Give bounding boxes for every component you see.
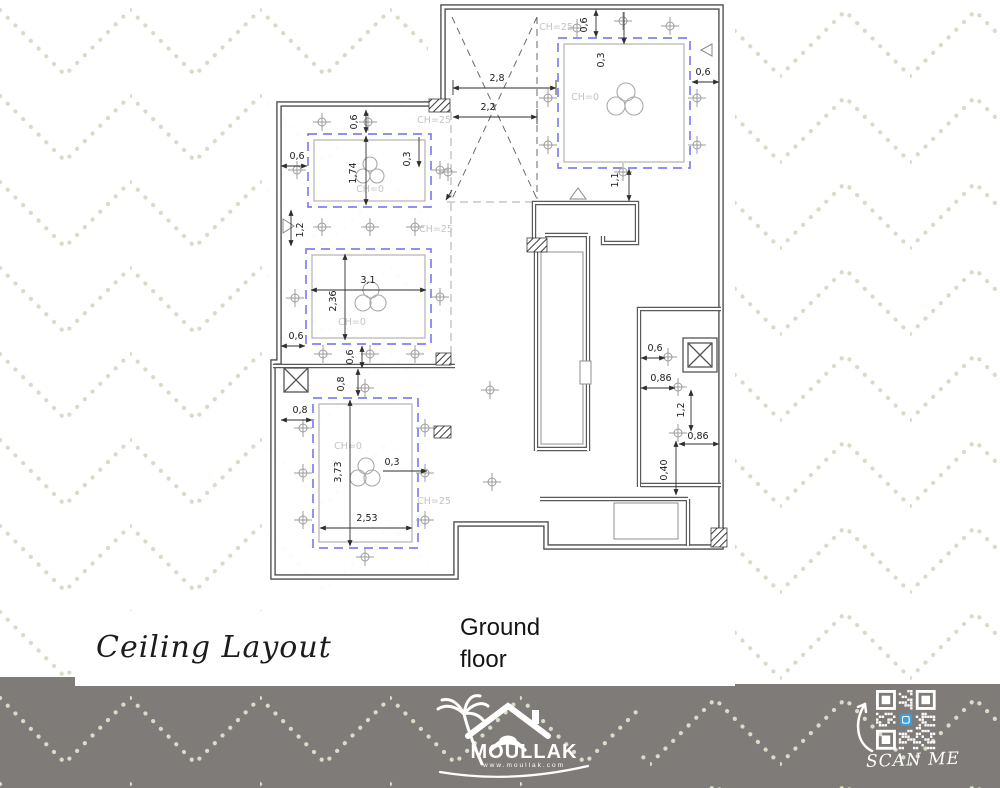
dimension: 0,86 xyxy=(641,373,675,388)
dimension-label: 0,6 xyxy=(579,17,590,32)
dimension-label: 3,1 xyxy=(360,275,375,286)
dimension-label: 0,8 xyxy=(336,376,347,391)
dimension: 0,8 xyxy=(336,369,358,396)
dimension-label: 0,8 xyxy=(292,405,307,416)
dimension-label: 3,73 xyxy=(333,461,344,482)
dimension-label: 2,8 xyxy=(489,73,504,84)
floor-plan: CH=25 CH=25 CH=25 CH=25 CH=0 CH=0 CH=0 C… xyxy=(0,0,1000,660)
qr-center-icon xyxy=(900,714,912,726)
dimension-label: 2,53 xyxy=(356,513,377,524)
brand-website: www.moullak.com xyxy=(482,762,565,769)
dimension: 2,53 xyxy=(320,513,412,528)
floor-label-line1: Ground xyxy=(460,612,540,644)
dimension-label: 1,1 xyxy=(610,172,621,187)
dimension-label: 1,2 xyxy=(295,222,306,237)
dimension: 0,3 xyxy=(596,12,624,68)
dimension: 3,1 xyxy=(311,275,426,290)
stair-flight xyxy=(541,252,583,444)
dimension: 0,6 xyxy=(281,331,305,346)
ceiling-height-label: CH=0 xyxy=(356,184,384,195)
moullak-logo: MOULLAK www.moullak.com xyxy=(420,688,600,786)
ceiling-height-label: CH=25 xyxy=(417,496,451,507)
dimension-label: 0,3 xyxy=(384,457,399,468)
dimension: 2,2 xyxy=(453,102,537,117)
dimension: 0,8 xyxy=(281,405,312,420)
dimension: 0,3 xyxy=(383,457,427,471)
dimension-label: 0,3 xyxy=(402,151,413,166)
chandelier-symbols xyxy=(350,83,643,486)
void-cross-dashed xyxy=(446,17,537,363)
dimension-label: 2,2 xyxy=(480,102,495,113)
arrow-to-qr-icon xyxy=(850,697,878,757)
ceiling-height-label: CH=25 xyxy=(419,224,453,235)
dimension: 0,6 xyxy=(281,151,307,166)
ceiling-height-label: CH=25 xyxy=(539,22,573,33)
dimensions: 2,8 2,2 0,6 0,3 0,6 1,1 xyxy=(281,10,719,546)
dimension-label: 0,86 xyxy=(687,431,708,442)
brand-name: MOULLAK xyxy=(471,741,578,763)
dimension-label: 1,74 xyxy=(348,162,359,183)
dimension: 1,2 xyxy=(291,210,306,246)
dimension-label: 0,6 xyxy=(289,151,304,162)
ceiling-height-label: CH=0 xyxy=(334,441,362,452)
floor-label-line2: floor xyxy=(460,644,540,676)
dimension-label: 0,6 xyxy=(345,349,356,364)
dimension: 0,6 xyxy=(579,10,596,37)
dimension-label: 1,2 xyxy=(676,402,687,417)
ceiling-height-label: CH=0 xyxy=(338,317,366,328)
dimension-label: 0,6 xyxy=(695,67,710,78)
dimension-label: 0,6 xyxy=(647,343,662,354)
dimension-label: 0,3 xyxy=(596,52,607,67)
outer-walls xyxy=(273,7,721,577)
ceiling-height-label: CH=25 xyxy=(417,115,451,126)
dimension-label: 0,6 xyxy=(288,331,303,342)
dimension-label: 0,6 xyxy=(349,114,360,129)
ceiling-height-label: CH=0 xyxy=(571,92,599,103)
drawing-title: Ceiling Layout xyxy=(96,630,332,665)
dimension-label: 2,36 xyxy=(328,290,339,311)
dimension-label: 0,40 xyxy=(659,459,670,480)
dimension: 0,6 xyxy=(692,67,719,82)
house-roof-icon xyxy=(468,706,548,736)
dimension: 0,6 xyxy=(641,343,665,358)
dimension: 3,73 xyxy=(333,400,350,546)
floor-label: Ground floor xyxy=(460,612,540,676)
dimension: 0,3 xyxy=(402,137,419,167)
page: CH=25 CH=25 CH=25 CH=25 CH=0 CH=0 CH=0 C… xyxy=(0,0,1000,788)
scan-me-label: SCAN ME xyxy=(866,748,977,772)
qr-code xyxy=(876,690,936,750)
dimension-label: 0,86 xyxy=(650,373,671,384)
